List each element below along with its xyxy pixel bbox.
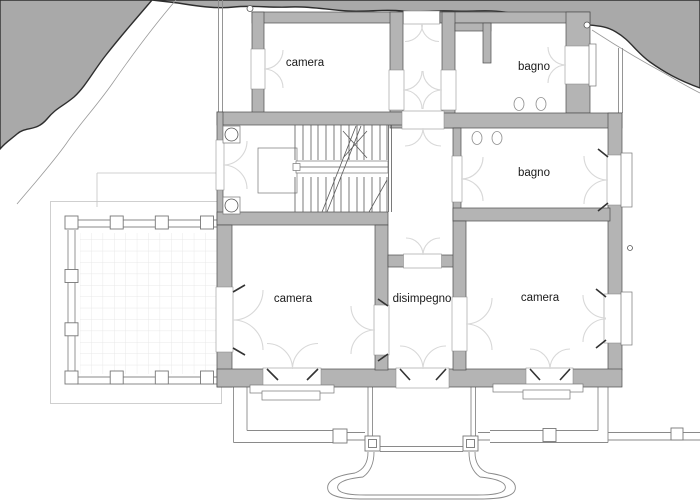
floor-plan: camera bagno bagno camera disimpegno cam…	[0, 0, 700, 500]
window-box	[621, 292, 632, 345]
room-label-camera-sw: camera	[274, 293, 313, 305]
stair-landing	[258, 148, 297, 193]
door-disimpegno-south	[396, 368, 449, 388]
door-vestibule-top	[404, 11, 440, 24]
window-camera-se	[604, 294, 623, 343]
handrail-cap	[293, 164, 300, 171]
door-passage-top	[402, 111, 444, 129]
terrace-tiles	[80, 233, 217, 374]
floor-plan-svg: camera bagno bagno camera disimpegno cam…	[0, 0, 700, 500]
walkway-post	[671, 428, 683, 440]
window-bagno-e	[607, 155, 623, 205]
walkway-post	[333, 429, 347, 443]
washbasin	[536, 98, 546, 111]
room-label-camera-se: camera	[521, 292, 560, 304]
window-bagno-ne	[565, 46, 591, 84]
window-stair-hall	[216, 140, 224, 190]
room-label-camera-nw: camera	[286, 57, 325, 69]
portico-column-core	[369, 440, 377, 448]
washbasin	[514, 98, 524, 111]
portico-column-core	[467, 440, 475, 448]
room-label-bagno-e: bagno	[518, 167, 550, 179]
window-box	[589, 44, 596, 86]
column	[225, 199, 238, 212]
room-label-disimpegno: disimpegno	[393, 293, 452, 305]
wc	[472, 132, 482, 145]
bidet	[492, 132, 502, 145]
door-bagno-e	[452, 156, 462, 202]
window-box	[621, 153, 632, 207]
column	[225, 128, 238, 141]
walkway-post	[543, 429, 556, 442]
room-label-bagno-ne: bagno	[518, 61, 550, 73]
door-camera-sw-disimpegno	[374, 305, 389, 355]
window-camera-sw-terrace	[216, 287, 233, 352]
door-disimpegno-top	[404, 254, 442, 268]
window-camera-nw-left	[251, 49, 265, 89]
door-vestibule-right	[441, 70, 456, 110]
balcony-recess	[262, 391, 320, 400]
door-vestibule-left	[389, 70, 404, 110]
door-disimpegno-camera-se	[452, 297, 467, 351]
balcony-recess	[523, 390, 570, 399]
